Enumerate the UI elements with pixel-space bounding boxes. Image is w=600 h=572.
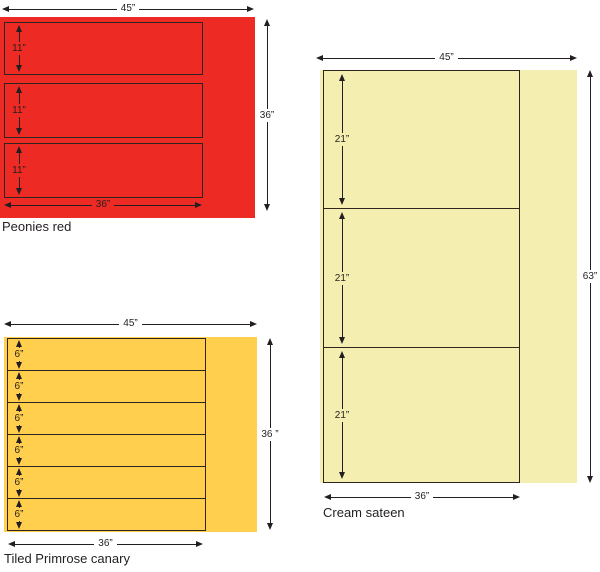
dim-strip-height: 6” bbox=[6, 468, 32, 497]
cut-strip: 21” bbox=[323, 347, 520, 483]
dim-fabric-height: 36” bbox=[254, 19, 280, 211]
dim-strip-height: 6” bbox=[6, 404, 32, 433]
dim-label: 6” bbox=[15, 508, 24, 521]
cut-strip: 6” bbox=[7, 434, 206, 467]
dim-label: 36” bbox=[94, 538, 116, 549]
cut-strip: 6” bbox=[7, 370, 206, 403]
dim-label: 6” bbox=[15, 444, 24, 457]
dim-label: 36” bbox=[260, 109, 274, 122]
dim-line bbox=[19, 393, 20, 394]
dim-line bbox=[342, 358, 343, 409]
dim-label: 63” bbox=[583, 270, 597, 283]
fabric-caption: Tiled Primrose canary bbox=[4, 551, 130, 566]
dim-line bbox=[11, 205, 92, 206]
fabric-cutting-diagram: 45” 11” 11” 11” bbox=[0, 0, 600, 572]
dim-label: 45” bbox=[435, 52, 457, 63]
dim-line bbox=[433, 497, 513, 498]
dim-strip-height: 6” bbox=[6, 436, 32, 465]
dim-line bbox=[342, 219, 343, 272]
dim-fabric-height: 63” bbox=[577, 70, 600, 483]
dim-line bbox=[19, 153, 20, 164]
dim-line bbox=[267, 122, 268, 205]
fabric-caption: Peonies red bbox=[2, 219, 71, 234]
dim-strip-height: 21” bbox=[329, 74, 355, 205]
dim-line bbox=[342, 285, 343, 338]
cut-strip: 11” bbox=[4, 83, 203, 138]
dim-line bbox=[142, 324, 250, 325]
dim-strip-height: 11” bbox=[6, 146, 32, 195]
cut-strip: 6” bbox=[7, 338, 206, 371]
dim-fabric-width: 45” bbox=[316, 52, 577, 64]
dim-label: 11” bbox=[12, 164, 26, 177]
cut-strip: 6” bbox=[7, 402, 206, 435]
dim-fabric-height: 36 ” bbox=[257, 338, 283, 530]
dim-strip-height: 6” bbox=[6, 500, 32, 529]
dim-label: 45” bbox=[119, 318, 141, 329]
dim-cut-width: 36” bbox=[4, 199, 202, 211]
dim-label: 21” bbox=[335, 272, 349, 285]
dim-line bbox=[590, 283, 591, 476]
cut-strip: 11” bbox=[4, 22, 203, 75]
dim-line bbox=[342, 422, 343, 473]
dim-strip-height: 11” bbox=[6, 25, 32, 72]
dim-line bbox=[270, 441, 271, 524]
dim-line bbox=[19, 489, 20, 490]
dim-fabric-width: 45” bbox=[2, 3, 254, 15]
dim-label: 45” bbox=[117, 3, 139, 14]
dim-line bbox=[15, 544, 94, 545]
dim-line bbox=[19, 32, 20, 42]
dim-line bbox=[19, 177, 20, 188]
dim-line bbox=[19, 361, 20, 362]
dim-cut-width: 36” bbox=[8, 538, 203, 550]
dim-line bbox=[9, 9, 117, 10]
dim-line bbox=[323, 58, 435, 59]
dim-label: 6” bbox=[15, 412, 24, 425]
dim-strip-height: 11” bbox=[6, 86, 32, 135]
dim-line bbox=[267, 26, 268, 109]
dim-line bbox=[139, 9, 247, 10]
dim-strip-height: 21” bbox=[329, 351, 355, 479]
dim-strip-height: 21” bbox=[329, 212, 355, 344]
dim-line bbox=[114, 205, 195, 206]
dim-line bbox=[342, 146, 343, 198]
cut-strip: 21” bbox=[323, 208, 520, 348]
dim-line bbox=[117, 544, 196, 545]
dim-line bbox=[19, 93, 20, 104]
dim-line bbox=[19, 521, 20, 522]
dim-label: 21” bbox=[335, 409, 349, 422]
dim-line bbox=[331, 497, 411, 498]
dim-line bbox=[342, 81, 343, 133]
dim-label: 6” bbox=[15, 380, 24, 393]
dim-line bbox=[458, 58, 570, 59]
dim-label: 36” bbox=[411, 491, 433, 502]
dim-label: 11” bbox=[12, 104, 26, 117]
dim-label: 21” bbox=[335, 133, 349, 146]
cut-strip: 6” bbox=[7, 498, 206, 531]
dim-line bbox=[270, 345, 271, 428]
dim-cut-width: 36” bbox=[324, 491, 520, 503]
dim-line bbox=[19, 457, 20, 458]
dim-line bbox=[590, 77, 591, 270]
dim-label: 36” bbox=[92, 199, 114, 210]
dim-line bbox=[19, 55, 20, 65]
dim-label: 36 ” bbox=[261, 428, 278, 441]
cut-strip: 21” bbox=[323, 70, 520, 209]
dim-line bbox=[19, 425, 20, 426]
dim-strip-height: 6” bbox=[6, 372, 32, 401]
fabric-caption: Cream sateen bbox=[323, 505, 405, 520]
cut-strip: 6” bbox=[7, 466, 206, 499]
dim-label: 6” bbox=[15, 348, 24, 361]
dim-line bbox=[19, 117, 20, 128]
dim-label: 6” bbox=[15, 476, 24, 489]
dim-strip-height: 6” bbox=[6, 340, 32, 369]
dim-fabric-width: 45” bbox=[4, 318, 257, 330]
dim-label: 11” bbox=[12, 42, 26, 55]
dim-line bbox=[11, 324, 119, 325]
cut-strip: 11” bbox=[4, 143, 203, 198]
